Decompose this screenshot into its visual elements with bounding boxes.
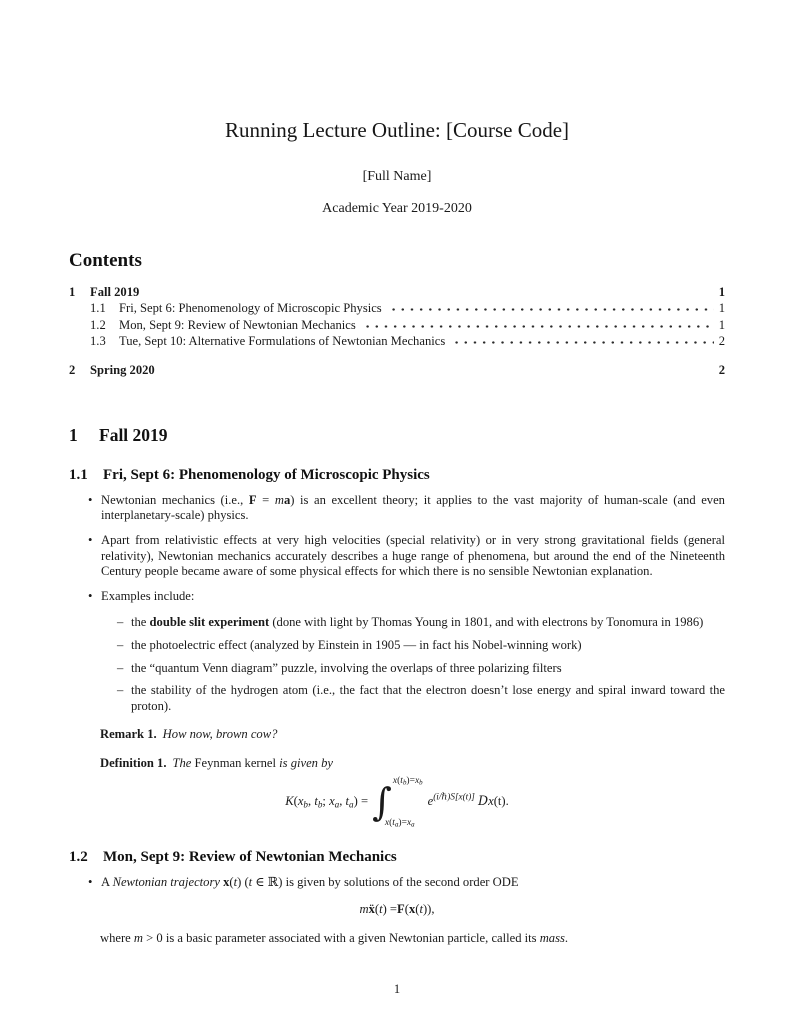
subsection-1-1-heading: 1.1 Fri, Sept 6: Phenomenology of Micros…: [69, 466, 725, 484]
list-item: • A Newtonian trajectory x(t) (t ∈ ℝ) is…: [69, 875, 725, 891]
sublist-item-text: the double slit experiment (done with li…: [131, 615, 725, 631]
toc-entry-sept-10[interactable]: 1.3 Tue, Sept 10: Alternative Formulatio…: [69, 333, 725, 349]
contents-heading: Contents: [69, 253, 725, 269]
sublist-item: – the stability of the hydrogen atom (i.…: [69, 683, 725, 714]
toc-entry-label: Fri, Sept 6: Phenomenology of Microscopi…: [119, 301, 382, 316]
section-1-heading: 1 Fall 2019: [69, 425, 725, 445]
bullet-icon: •: [88, 493, 101, 524]
list-item-text: Examples include:: [101, 589, 725, 605]
toc-entry-number: 2: [69, 363, 90, 378]
section-title: Fall 2019: [99, 425, 168, 445]
sublist-item: – the photoelectric effect (analyzed by …: [69, 638, 725, 654]
toc-entry-label: Tue, Sept 10: Alternative Formulations o…: [119, 334, 445, 349]
integral-limits: x(tb)=xb x(ta)=xa: [392, 776, 423, 828]
toc-dot-leader: [389, 300, 714, 312]
sublist-item: – the “quantum Venn diagram” puzzle, inv…: [69, 661, 725, 677]
subsection-title: Fri, Sept 6: Phenomenology of Microscopi…: [103, 466, 430, 484]
toc-entry-fall-2019[interactable]: 1 Fall 2019 1: [69, 284, 725, 300]
sublist-item-text: the “quantum Venn diagram” puzzle, invol…: [131, 661, 725, 677]
formula-integrand: e(i/ℏ)S[x(t)] Dx(t).: [428, 793, 509, 810]
bullet-icon: •: [88, 533, 101, 580]
list-item: • Newtonian mechanics (i.e., F = ma) is …: [69, 493, 725, 524]
continuation-paragraph: where m > 0 is a basic parameter associa…: [100, 931, 725, 947]
list-item: • Examples include:: [69, 589, 725, 605]
toc-entry-number: 1.2: [90, 318, 119, 333]
page-number: 1: [0, 982, 794, 998]
formula-lhs: K(xb, tb; xa, ta) =: [285, 794, 368, 810]
bullet-icon: •: [88, 875, 101, 891]
table-of-contents: 1 Fall 2019 1 1.1 Fri, Sept 6: Phenomeno…: [69, 284, 725, 379]
toc-dot-leader: [363, 317, 714, 329]
bullet-list: • Newtonian mechanics (i.e., F = ma) is …: [69, 493, 725, 605]
subsection-number: 1.2: [69, 848, 103, 866]
document-title: Running Lecture Outline: [Course Code]: [69, 118, 725, 142]
list-item-text: A Newtonian trajectory x(t) (t ∈ ℝ) is g…: [101, 875, 725, 891]
dash-icon: –: [117, 683, 131, 714]
toc-entry-number: 1.1: [90, 301, 119, 316]
dash-sublist: – the double slit experiment (done with …: [69, 615, 725, 714]
document-author: [Full Name]: [69, 169, 725, 185]
bullet-list: • A Newtonian trajectory x(t) (t ∈ ℝ) is…: [69, 875, 725, 891]
integral: ∫ x(tb)=xb x(ta)=xa: [372, 776, 423, 828]
feynman-kernel-formula: K(xb, tb; xa, ta) = ∫ x(tb)=xb x(ta)=xa …: [69, 774, 725, 830]
newton-ode-formula: m ẍ(t) = F(x(t)),: [69, 902, 725, 918]
toc-entry-page: 1: [717, 285, 725, 300]
remark-block: Remark 1.How now, brown cow?: [100, 727, 725, 743]
subsection-number: 1.1: [69, 466, 103, 484]
dash-icon: –: [117, 615, 131, 631]
toc-entry-page: 1: [717, 318, 725, 333]
list-item-text: Newtonian mechanics (i.e., F = ma) is an…: [101, 493, 725, 524]
toc-dot-leader: [452, 333, 714, 345]
sublist-item-text: the photoelectric effect (analyzed by Ei…: [131, 638, 725, 654]
toc-entry-spring-2020[interactable]: 2 Spring 2020 2: [69, 362, 725, 378]
toc-dot-leader: [162, 362, 714, 374]
toc-entry-sept-9[interactable]: 1.2 Mon, Sept 9: Review of Newtonian Mec…: [69, 317, 725, 333]
definition-body: The Feynman kernel is given by: [172, 756, 333, 770]
toc-entry-sept-6[interactable]: 1.1 Fri, Sept 6: Phenomenology of Micros…: [69, 300, 725, 316]
toc-entry-label: Fall 2019: [90, 285, 139, 300]
bullet-icon: •: [88, 589, 101, 605]
toc-entry-label: Mon, Sept 9: Review of Newtonian Mechani…: [119, 318, 356, 333]
sublist-item-text: the stability of the hydrogen atom (i.e.…: [131, 683, 725, 714]
toc-entry-page: 1: [717, 301, 725, 316]
definition-block: Definition 1.The Feynman kernel is given…: [100, 756, 725, 772]
definition-label: Definition 1.: [100, 756, 166, 770]
toc-dot-leader: [146, 284, 714, 296]
dash-icon: –: [117, 661, 131, 677]
toc-entry-number: 1.3: [90, 334, 119, 349]
integral-icon: ∫: [372, 781, 392, 823]
toc-entry-number: 1: [69, 285, 90, 300]
document-date: Academic Year 2019-2020: [69, 201, 725, 217]
list-item-text: Apart from relativistic effects at very …: [101, 533, 725, 580]
integral-lower-limit: x(ta)=xa: [385, 818, 423, 828]
toc-entry-page: 2: [717, 363, 725, 378]
integral-upper-limit: x(tb)=xb: [393, 776, 423, 786]
document-page: Running Lecture Outline: [Course Code] […: [0, 0, 794, 1028]
remark-body: How now, brown cow?: [163, 727, 278, 741]
dash-icon: –: [117, 638, 131, 654]
remark-label: Remark 1.: [100, 727, 157, 741]
section-number: 1: [69, 425, 99, 445]
subsection-1-2-heading: 1.2 Mon, Sept 9: Review of Newtonian Mec…: [69, 848, 725, 866]
list-item: • Apart from relativistic effects at ver…: [69, 533, 725, 580]
sublist-item: – the double slit experiment (done with …: [69, 615, 725, 631]
subsection-title: Mon, Sept 9: Review of Newtonian Mechani…: [103, 848, 397, 866]
toc-entry-label: Spring 2020: [90, 363, 155, 378]
toc-entry-page: 2: [717, 334, 725, 349]
